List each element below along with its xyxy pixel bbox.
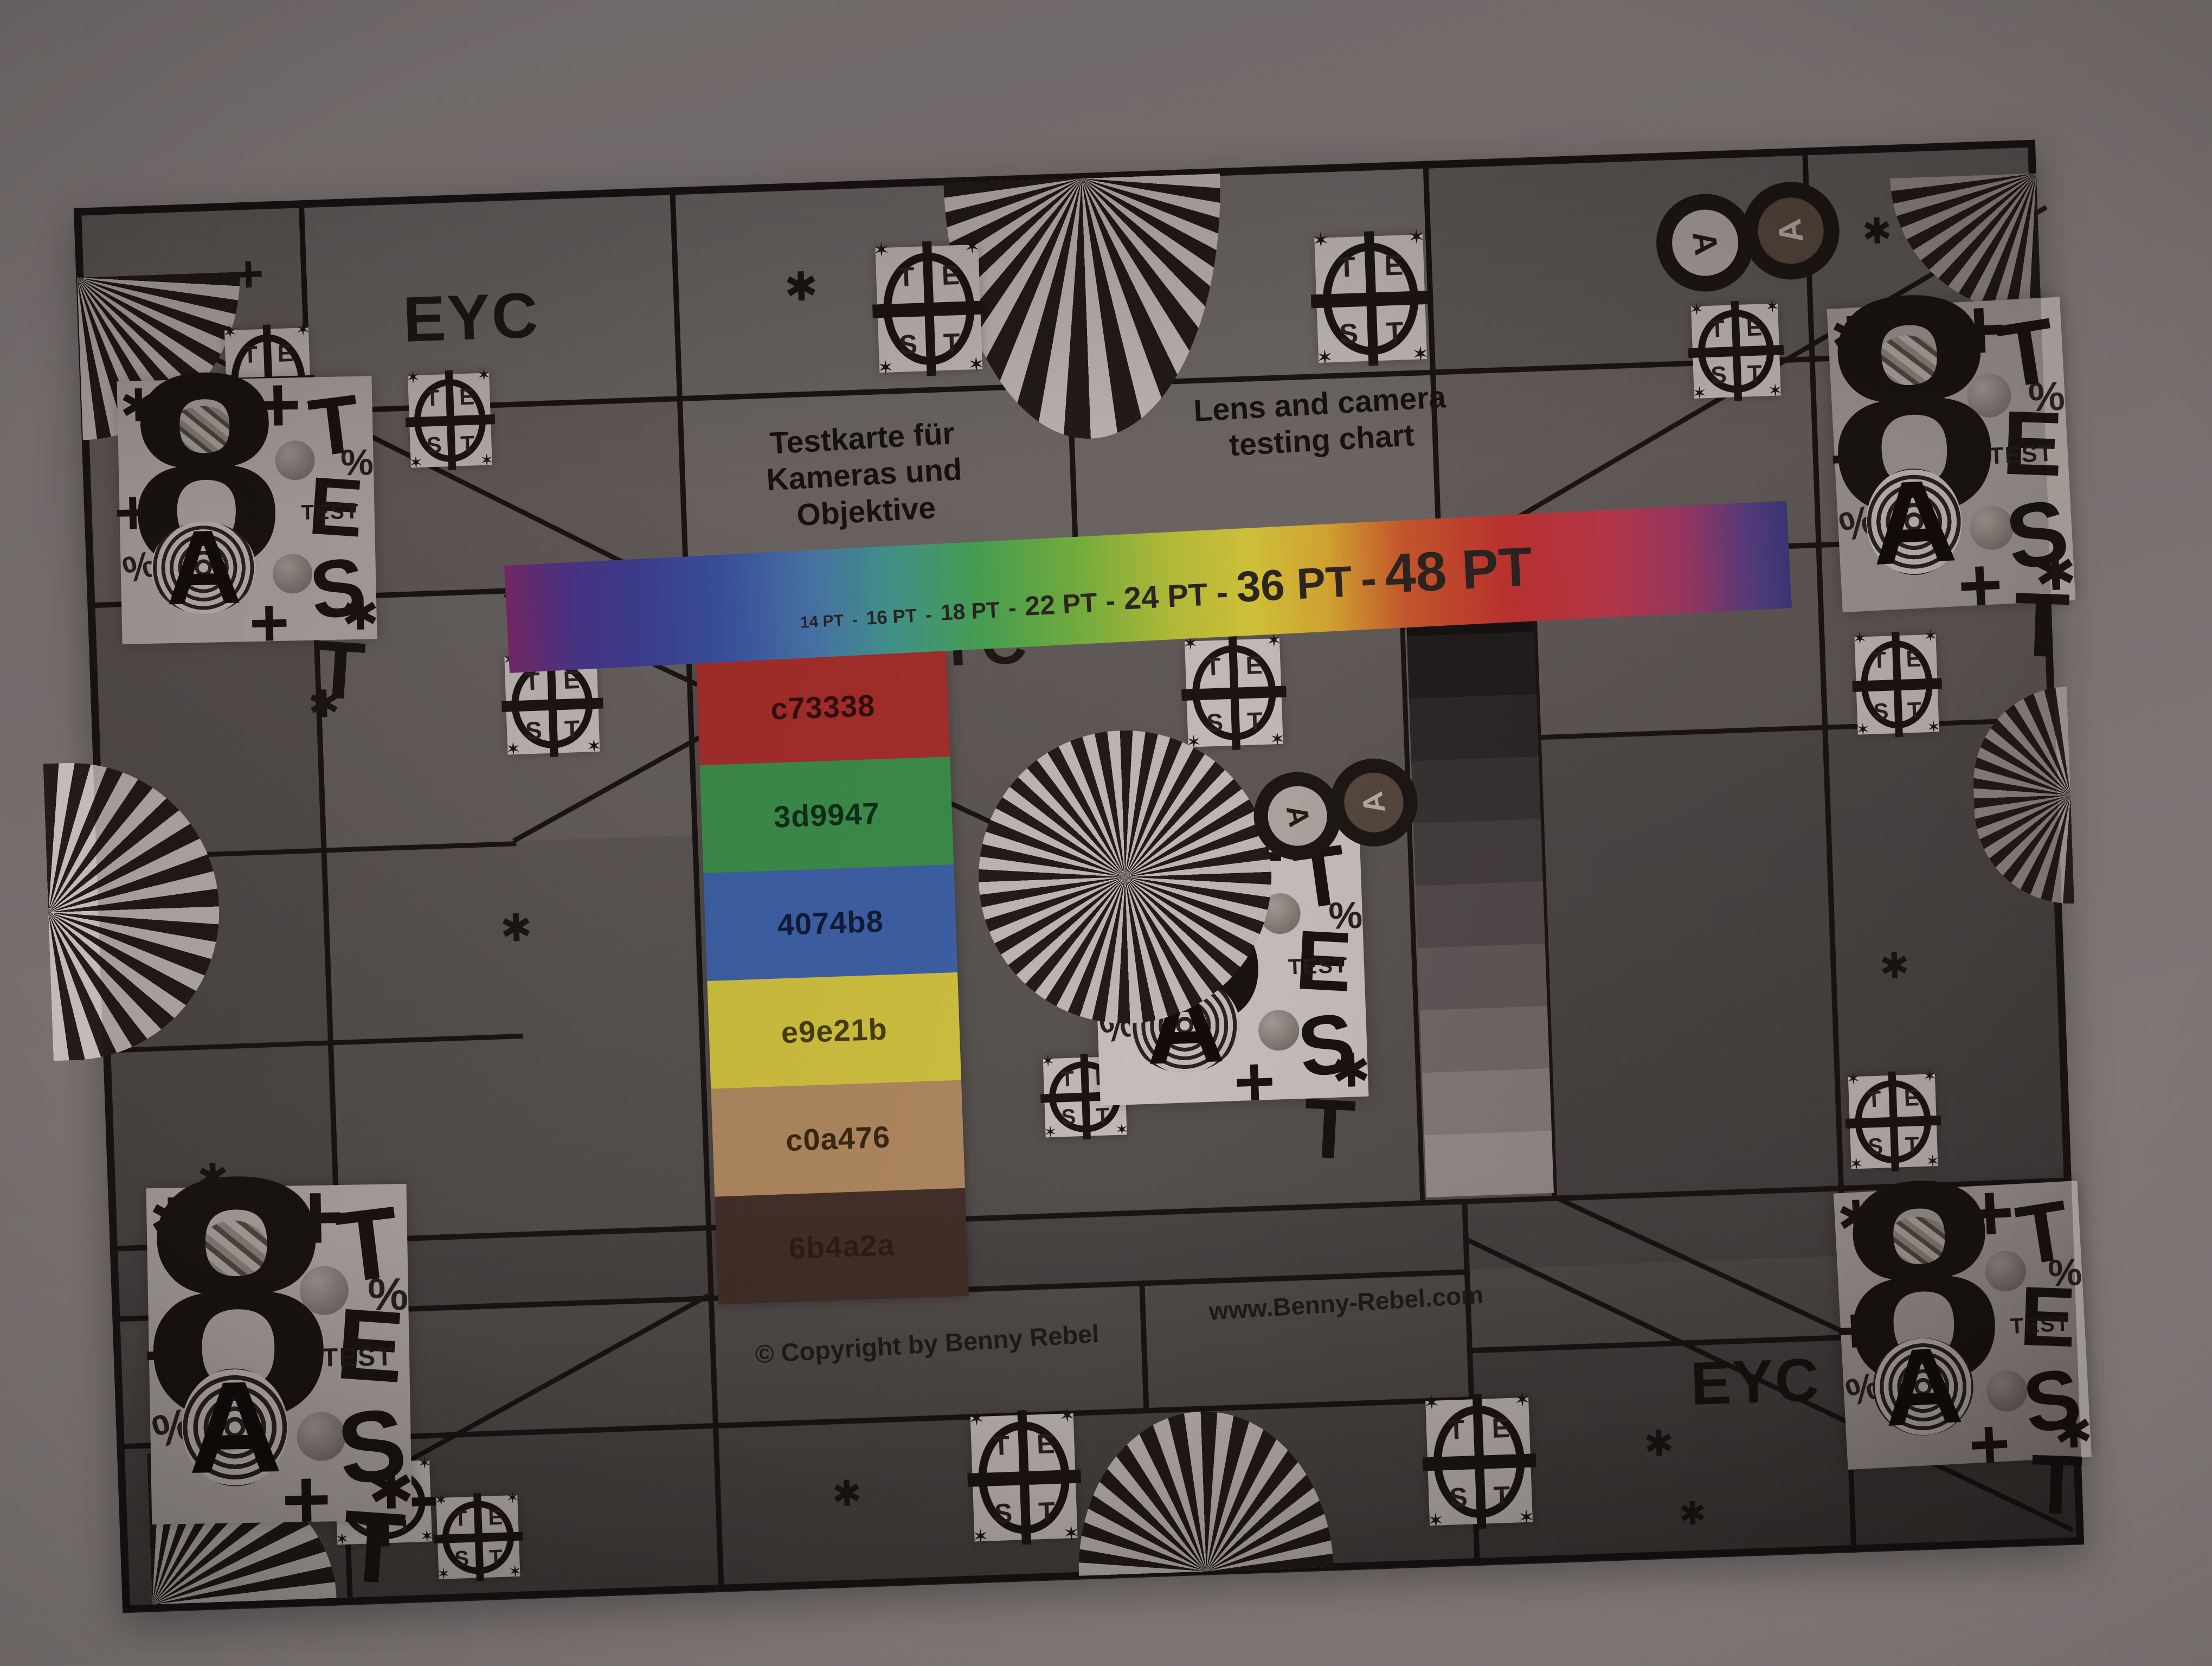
star-icon: ✶ bbox=[968, 355, 985, 375]
letter-a-target: A bbox=[181, 1368, 290, 1487]
letter-a-target: A bbox=[1281, 803, 1314, 829]
star-icon: ✶ bbox=[477, 367, 491, 384]
gray-step bbox=[1422, 1068, 1552, 1135]
test-circle-marker: ✶ ✶ ✶ ✶ T E S T bbox=[970, 1413, 1078, 1541]
pt-separator: - bbox=[925, 605, 933, 625]
eight-test-tile-top-right: ✱ ✱ + + + % % 8 A T E S T TEST bbox=[1827, 297, 2076, 613]
test-letter: T bbox=[1867, 1088, 1881, 1111]
test-letter: E bbox=[1906, 648, 1921, 671]
eyc-logo-top-left: EYC bbox=[402, 283, 541, 352]
test-circle-marker: ✶ ✶ ✶ ✶ T E S T bbox=[875, 245, 982, 373]
eight-test-tile-bottom-right: ✱ ✱ + + + % % 8 A T E S T TEST bbox=[1834, 1181, 2092, 1470]
eight-test-tile-top-left: ✱ ✱ + + + % % 8 A T E S T TEST bbox=[117, 376, 377, 644]
pt-label: 24 PT bbox=[1123, 579, 1208, 615]
swatch-blue: 4074b8 bbox=[703, 864, 957, 981]
star-icon: ✶ bbox=[506, 1490, 519, 1507]
star-icon: ✶ bbox=[968, 1409, 985, 1429]
star-icon: ✶ bbox=[1689, 300, 1705, 318]
swatch-red: c73338 bbox=[696, 649, 950, 765]
star-icon: ✶ bbox=[437, 1566, 451, 1582]
pt-separator: - bbox=[1008, 597, 1017, 621]
asterisk-icon: ✱ bbox=[1679, 1497, 1707, 1530]
test-letter: S bbox=[1206, 709, 1223, 735]
test-letter: E bbox=[1904, 1086, 1919, 1110]
test-word: TEST bbox=[1288, 953, 1348, 980]
test-letter: T bbox=[1247, 708, 1263, 734]
test-letter: T bbox=[993, 1432, 1010, 1459]
star-icon: ✶ bbox=[1924, 629, 1938, 645]
star-icon: ✶ bbox=[1270, 730, 1285, 748]
test-letter: T bbox=[1872, 649, 1887, 672]
star-icon: ✶ bbox=[1312, 230, 1330, 251]
test-letter: T bbox=[1747, 362, 1762, 387]
star-icon: ✶ bbox=[1423, 1393, 1440, 1413]
pt-label: 16 PT bbox=[866, 606, 917, 628]
test-letter: S bbox=[426, 434, 442, 457]
star-icon: ✶ bbox=[972, 1527, 989, 1547]
siemens-fan-left-middle bbox=[43, 758, 224, 1061]
test-word: TEST bbox=[321, 1342, 394, 1373]
pt-separator: - bbox=[1215, 574, 1229, 610]
test-letter: S bbox=[1711, 363, 1727, 388]
test-letter: T bbox=[460, 433, 475, 456]
test-chart-board: ✱ ✱ + + + % % 8 A T E S T TEST ✱ ✱ + + +… bbox=[74, 140, 2084, 1612]
rainbow-type-scale-bar: 14 PT - 16 PT - 18 PT - 22 PT - 24 PT - … bbox=[504, 501, 1792, 673]
test-circle-marker: ✶ ✶ ✶ ✶ T E S T bbox=[1425, 1398, 1533, 1526]
test-letter: T bbox=[1386, 318, 1404, 347]
test-letter: E bbox=[1384, 251, 1404, 280]
test-letter: T bbox=[897, 263, 915, 291]
test-letter: T bbox=[1038, 1498, 1056, 1526]
swatch-hex-label: 3d9947 bbox=[773, 796, 880, 835]
star-icon: ✶ bbox=[1407, 227, 1425, 248]
letter-a-target: A bbox=[150, 521, 256, 615]
gray-step bbox=[1424, 1131, 1554, 1197]
star-icon: ✶ bbox=[1846, 1071, 1860, 1088]
test-word: TEST bbox=[2010, 1311, 2070, 1339]
website-text: www.Benny-Rebel.com bbox=[1188, 1279, 1504, 1327]
star-icon: ✶ bbox=[1044, 1125, 1057, 1141]
star-icon: ✶ bbox=[586, 738, 602, 756]
test-letter: T bbox=[489, 1546, 503, 1568]
swatch-brown: 6b4a2a bbox=[715, 1188, 969, 1305]
test-letter: T bbox=[1907, 699, 1921, 722]
eyc-logo-bottom-right: EYC bbox=[1689, 1349, 1821, 1414]
test-letter: E bbox=[1036, 1430, 1055, 1458]
star-icon: ✶ bbox=[1922, 1068, 1937, 1085]
star-icon: ✶ bbox=[409, 454, 423, 471]
siemens-fan-bottom-center bbox=[1073, 1407, 1334, 1576]
test-letter: E bbox=[1491, 1414, 1510, 1442]
test-letter: T bbox=[1709, 317, 1725, 342]
eight-test-tile-bottom-left: ✱ ✱ + + + % % 8 A T E S T TEST bbox=[146, 1184, 413, 1524]
test-circle-marker: ✶ ✶ ✶ ✶ T E S T bbox=[436, 1495, 520, 1579]
title-german: Testkarte für Kameras und Objektive bbox=[696, 412, 1032, 539]
star-icon: ✶ bbox=[509, 1564, 522, 1580]
star-icon: ✶ bbox=[1514, 1390, 1531, 1410]
test-letter: E bbox=[1245, 652, 1263, 678]
star-icon: ✶ bbox=[1518, 1508, 1535, 1528]
test-letter: T bbox=[943, 329, 960, 357]
asterisk-icon: ✱ bbox=[831, 1475, 863, 1512]
letter-a-target: A bbox=[1773, 216, 1809, 245]
star-icon: ✶ bbox=[1266, 632, 1282, 650]
test-circle-marker: ✶ ✶ ✶ ✶ T E S T bbox=[1185, 638, 1283, 747]
star-icon: ✶ bbox=[1927, 719, 1941, 736]
test-letter: T bbox=[1493, 1482, 1510, 1510]
star-icon: ✶ bbox=[505, 740, 521, 759]
test-letter: S bbox=[1449, 1483, 1468, 1511]
test-letter: S bbox=[1061, 1106, 1076, 1129]
star-icon: ✶ bbox=[1768, 382, 1783, 400]
letter-a-target: A bbox=[1863, 466, 1964, 578]
star-icon: ✶ bbox=[406, 370, 420, 387]
test-letter: T bbox=[1060, 1068, 1075, 1090]
test-letter: S bbox=[454, 1548, 470, 1570]
test-letter: S bbox=[1873, 700, 1889, 723]
star-icon: ✶ bbox=[1316, 347, 1334, 368]
star-icon: ✶ bbox=[420, 1528, 434, 1545]
pt-separator: - bbox=[1359, 554, 1378, 603]
test-letter: E bbox=[1746, 316, 1763, 341]
asterisk-icon: ✱ bbox=[500, 908, 533, 947]
test-letter: S bbox=[994, 1500, 1013, 1527]
test-letter: E bbox=[563, 667, 580, 693]
letter-a-target: A bbox=[1358, 790, 1391, 816]
swatch-hex-label: 6b4a2a bbox=[788, 1227, 896, 1266]
test-letter: T bbox=[1338, 253, 1356, 281]
star-icon: ✶ bbox=[1041, 1054, 1054, 1070]
pt-label: 18 PT bbox=[940, 599, 1000, 624]
star-icon: ✶ bbox=[963, 237, 980, 257]
gray-step bbox=[1407, 632, 1536, 699]
gray-step bbox=[1418, 944, 1547, 1010]
grid-line bbox=[1540, 717, 2055, 740]
star-icon: ✶ bbox=[1692, 385, 1707, 402]
copyright-text: © Copyright by Benny Rebel bbox=[726, 1317, 1128, 1371]
test-circle-marker: ✶ ✶ ✶ ✶ T E S T bbox=[1314, 234, 1427, 363]
test-circle-marker: ✶ ✶ ✶ ✶ T E S T bbox=[1855, 635, 1939, 735]
title-english: Lens and camera testing chart bbox=[1167, 377, 1475, 467]
star-icon: ✶ bbox=[1427, 1510, 1444, 1530]
test-letter: S bbox=[525, 718, 542, 744]
star-icon: ✶ bbox=[1856, 722, 1870, 739]
pt-label: 14 PT bbox=[800, 613, 844, 631]
test-letter: T bbox=[1205, 654, 1221, 680]
star-icon: ✶ bbox=[417, 1455, 432, 1472]
swatch-hex-label: c73338 bbox=[770, 688, 876, 727]
star-icon: ✶ bbox=[480, 452, 494, 469]
star-icon: ✶ bbox=[1853, 631, 1867, 648]
grid-line bbox=[1139, 1280, 1149, 1413]
gray-step bbox=[1420, 1006, 1549, 1073]
swatch-green: 3d9947 bbox=[699, 757, 954, 873]
swatch-yellow: e9e21b bbox=[707, 972, 961, 1089]
swatch-hex-label: 4074b8 bbox=[777, 904, 884, 943]
star-icon: ✶ bbox=[1115, 1122, 1129, 1138]
test-word: TEST bbox=[1989, 440, 2054, 470]
pt-label: 22 PT bbox=[1024, 589, 1098, 620]
swatch-tan: c0a476 bbox=[711, 1080, 965, 1197]
pt-separator: - bbox=[1105, 587, 1116, 616]
test-letter: S bbox=[899, 331, 918, 358]
star-icon: ✶ bbox=[434, 1492, 448, 1509]
gray-step bbox=[1416, 881, 1545, 948]
test-word: TEST bbox=[301, 500, 359, 525]
letter-a-target: A bbox=[1687, 229, 1723, 257]
sideways-eight-target: A A bbox=[1651, 188, 1797, 292]
test-letter: S bbox=[1339, 319, 1359, 348]
test-circle-marker: ✶ ✶ ✶ ✶ T E S T bbox=[1691, 303, 1781, 398]
test-letter: T bbox=[524, 669, 541, 694]
test-letter: T bbox=[425, 387, 440, 410]
test-letter: T bbox=[564, 716, 580, 742]
asterisk-icon: ✱ bbox=[1879, 947, 1911, 984]
pt-label: 48 PT bbox=[1384, 539, 1534, 601]
test-letter: T bbox=[1448, 1416, 1465, 1444]
photo-of-test-chart: { "scene": { "description": "Dim photogr… bbox=[0, 0, 2212, 1666]
color-swatch-column: c73338 3d9947 4074b8 e9e21b c0a476 6b4a2… bbox=[696, 649, 969, 1304]
gray-step bbox=[1413, 819, 1543, 886]
star-icon: ✶ bbox=[877, 358, 894, 378]
test-letter: E bbox=[459, 385, 474, 408]
grid-line bbox=[103, 1034, 523, 1053]
star-icon: ✶ bbox=[1765, 298, 1780, 316]
swatch-hex-label: e9e21b bbox=[781, 1011, 888, 1050]
swatch-hex-label: c0a476 bbox=[785, 1119, 891, 1158]
gray-step bbox=[1411, 757, 1541, 823]
gray-step bbox=[1409, 694, 1539, 761]
test-letter: E bbox=[941, 261, 960, 289]
star-icon: ✶ bbox=[873, 240, 890, 260]
test-letter: T bbox=[1096, 1105, 1110, 1127]
test-letter: E bbox=[488, 1506, 503, 1528]
pt-label: 36 PT bbox=[1236, 560, 1353, 609]
asterisk-icon: ✱ bbox=[1643, 1425, 1675, 1462]
grayscale-step-wedge bbox=[1405, 569, 1554, 1197]
star-icon: ✶ bbox=[1063, 1523, 1079, 1543]
star-icon: ✶ bbox=[1059, 1406, 1076, 1426]
star-icon: ✶ bbox=[1412, 344, 1430, 365]
asterisk-icon: ✱ bbox=[784, 266, 819, 307]
star-icon: ✶ bbox=[295, 321, 311, 339]
test-circle-marker: ✶ ✶ ✶ ✶ T E S T bbox=[408, 373, 492, 467]
pt-separator: - bbox=[852, 612, 858, 628]
letter-a-target: A bbox=[1870, 1336, 1976, 1438]
test-letter: T bbox=[453, 1508, 467, 1530]
